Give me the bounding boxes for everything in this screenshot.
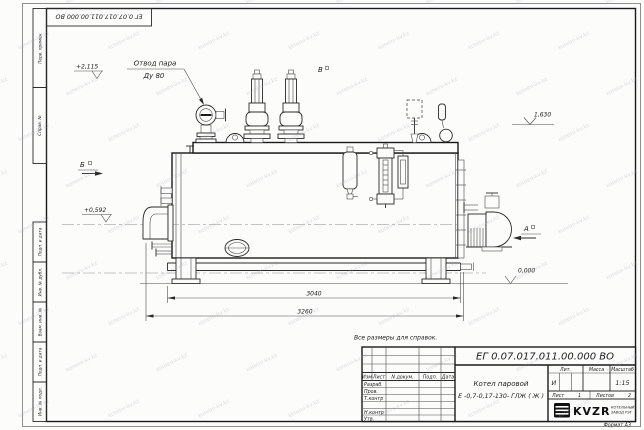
boiler-body <box>172 143 458 259</box>
scale-label: Масштаб <box>611 367 634 373</box>
safety-valve-1 <box>244 70 270 143</box>
elevation-mark-right-top: 1,630 <box>512 112 554 125</box>
elevation-mark-zero: 0,000 <box>505 268 535 284</box>
sheet-value: 1 <box>578 393 581 399</box>
row-prov: Пров. <box>364 389 378 395</box>
callout-steam-outlet: Отвод пара Ду 80 <box>127 60 204 106</box>
steam-callout-line1: Отвод пара <box>134 60 177 68</box>
sheet-label: Лист <box>551 393 564 399</box>
view-a-text: А <box>523 225 529 233</box>
view-label-a: А <box>513 225 541 240</box>
burner <box>143 205 173 257</box>
lit-value: И <box>551 380 556 387</box>
mass-label: Масса <box>589 367 604 373</box>
row-utv: Утв. <box>364 417 374 423</box>
view-b-text: Б <box>80 161 85 169</box>
product-name-line2: Е -0,7-0,17-130- ГЛЖ ( Ж ) <box>458 393 544 400</box>
scale-value: 1:15 <box>615 380 629 387</box>
row-tkontr: Т.контр <box>364 396 383 402</box>
reference-note: Все размеры для справок. <box>354 335 437 342</box>
stamp-inv-dubl: Инв. № дубл. <box>38 268 43 297</box>
view-b-refmark <box>89 162 92 165</box>
col-list: Лист <box>372 374 385 380</box>
elevation-right-top-text: 1,630 <box>534 112 551 119</box>
col-ndokum: N докум. <box>391 374 413 380</box>
stamp-vzam-inv: Взам. инв. № <box>38 307 43 336</box>
sheets-label: Листов <box>595 393 614 399</box>
stamp-sprav-no: Справ. № <box>37 115 42 136</box>
dimension-3040: 3040 <box>168 272 461 303</box>
company-line2: ЗАВОД РЭТ <box>611 411 633 415</box>
elevation-left-text: +0,592 <box>84 207 106 214</box>
safety-valve-2 <box>278 70 304 143</box>
col-podp: Подп. <box>423 374 438 380</box>
stamp-perv-primen: Перв. примен. <box>38 32 43 63</box>
company-line1: КОТЕЛЬНЫЙ <box>611 405 635 410</box>
view-label-v: В <box>318 66 329 74</box>
dim-3040-text: 3040 <box>306 291 321 298</box>
stamp-podp-data-2: Подп. и дата <box>38 347 43 376</box>
lit-label: Лит. <box>559 367 571 373</box>
title-block: ЕГ 0.07.017.011.00.000 ВО Котел паровой … <box>362 347 636 423</box>
drawing-canvas: ЕГ 0.07.017.011.00.000 ВО Перв. примен. … <box>0 0 644 430</box>
corner-stamp-text: ЕГ 0.07.017.011.00.000 ВО <box>56 12 143 19</box>
elevation-mark-top-left: +2,115 <box>74 64 103 79</box>
skid-frame <box>168 258 474 284</box>
elevation-top-left-text: +2,115 <box>76 64 98 71</box>
kvzr-logo-mark <box>554 403 570 418</box>
kvzr-logo-text: KVZR <box>573 405 610 418</box>
view-a-refmark <box>532 226 535 229</box>
format-label: Формат А3 <box>604 422 631 428</box>
sheets-value: 2 <box>628 393 631 399</box>
lifting-lug-1 <box>226 134 244 143</box>
doc-number-text: ЕГ 0.07.017.011.00.000 ВО <box>476 352 614 363</box>
drawing-sheet: ЕГ 0.07.017.011.00.000 ВО Перв. примен. … <box>0 0 644 430</box>
view-label-b: Б <box>78 161 103 176</box>
col-data: Дата <box>441 374 454 380</box>
manhole <box>225 240 249 257</box>
steam-outlet-valve <box>196 105 226 143</box>
view-v-refmark <box>326 67 329 70</box>
steam-callout-line2: Ду 80 <box>143 72 165 80</box>
boiler-top-platform <box>193 143 458 154</box>
row-razrab: Разраб. <box>364 382 383 388</box>
stamp-inv-podl: Инв. № подл. <box>38 387 43 416</box>
product-name-line1: Котел паровой <box>474 380 529 388</box>
elevation-zero-text: 0,000 <box>518 268 535 275</box>
feed-pump <box>464 193 512 251</box>
stamp-podp-data-1: Подп. и дата <box>38 227 43 256</box>
col-izm: Изм <box>362 374 372 380</box>
row-nkontr: Н.контр <box>364 410 384 416</box>
dim-3260-text: 3260 <box>297 309 312 316</box>
pressure-gauge-siphon <box>439 104 453 143</box>
view-v-text: В <box>318 66 323 74</box>
elevation-mark-left: +0,592 <box>82 207 112 222</box>
